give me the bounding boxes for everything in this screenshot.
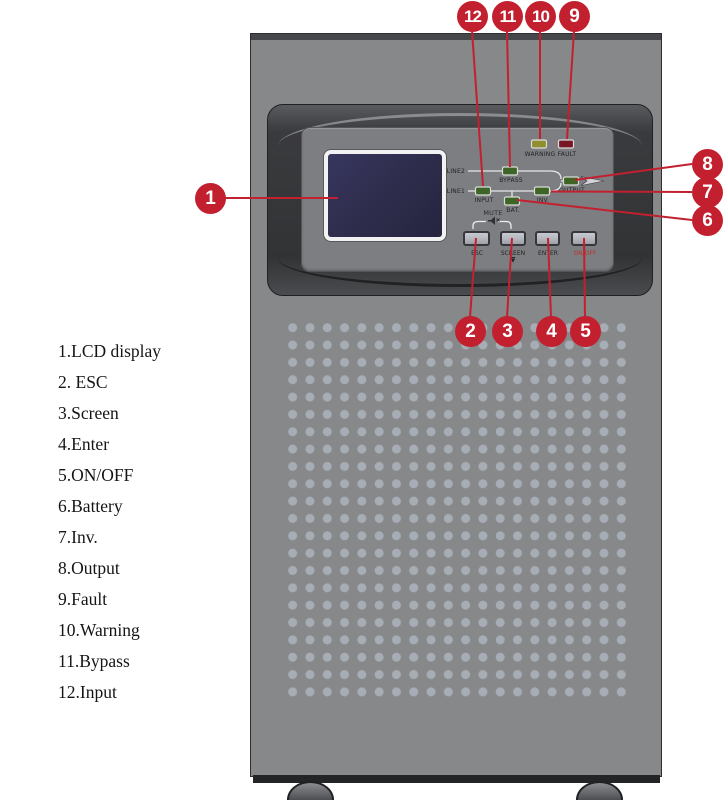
legend-item: 1.LCD display <box>58 336 248 367</box>
screen-button[interactable] <box>500 231 526 246</box>
ups-tower-body: WARNING FAULT LINE2 LINE1 BYPASS INPUT I… <box>250 33 662 777</box>
warning-led-label: WARNING <box>525 151 556 158</box>
callout-9: 9 <box>559 1 590 32</box>
callout-6: 6 <box>692 205 723 236</box>
ups-front-panel-figure: 1.LCD display 2. ESC 3.Screen 4.Enter 5.… <box>0 0 724 800</box>
inv-led-label: INV. <box>537 197 549 204</box>
callout-12: 12 <box>457 1 488 32</box>
legend-item: 8.Output <box>58 553 248 584</box>
device-top-edge <box>251 34 661 40</box>
enter-button[interactable] <box>535 231 560 246</box>
callout-11: 11 <box>492 1 523 32</box>
legend-item: 11.Bypass <box>58 646 248 677</box>
input-led-label: INPUT <box>475 197 494 204</box>
callout-4: 4 <box>536 316 567 347</box>
callout-5: 5 <box>570 316 601 347</box>
legend-item: 10.Warning <box>58 615 248 646</box>
lcd-screen <box>328 154 442 237</box>
legend-item: 7.Inv. <box>58 522 248 553</box>
screen-down-arrow-icon: ▼ <box>511 258 515 264</box>
legend-item: 4.Enter <box>58 429 248 460</box>
callout-1: 1 <box>195 183 226 214</box>
onoff-button[interactable] <box>571 231 597 246</box>
legend-item: 6.Battery <box>58 491 248 522</box>
bat-led-label: BAT. <box>506 207 519 214</box>
callout-3: 3 <box>492 316 523 347</box>
esc-button-label: ESC <box>471 250 483 257</box>
screen-button-label: SCREEN <box>501 250 525 257</box>
fault-led-label: FAULT <box>558 151 577 158</box>
esc-button[interactable] <box>463 231 490 246</box>
lcd-display-frame <box>323 149 447 242</box>
enter-button-label: ENTER <box>538 250 558 257</box>
line2-label: LINE2 <box>447 168 465 175</box>
legend-item: 2. ESC <box>58 367 248 398</box>
right-foot <box>576 781 623 800</box>
ventilation-grille <box>284 319 632 701</box>
legend-item: 3.Screen <box>58 398 248 429</box>
legend-item: 9.Fault <box>58 584 248 615</box>
onoff-button-label: ON/OFF <box>574 250 597 257</box>
legend-list: 1.LCD display 2. ESC 3.Screen 4.Enter 5.… <box>58 336 248 708</box>
callout-8: 8 <box>692 149 723 180</box>
callout-10: 10 <box>525 1 556 32</box>
callout-2: 2 <box>455 316 486 347</box>
bypass-led-label: BYPASS <box>499 177 523 184</box>
left-foot <box>287 781 334 800</box>
legend-item: 5.ON/OFF <box>58 460 248 491</box>
callout-7: 7 <box>692 177 723 208</box>
mute-label: MUTE <box>483 210 502 217</box>
legend-item: 12.Input <box>58 677 248 708</box>
line1-label: LINE1 <box>447 188 465 195</box>
output-led-label: OUTPUT <box>559 187 585 194</box>
